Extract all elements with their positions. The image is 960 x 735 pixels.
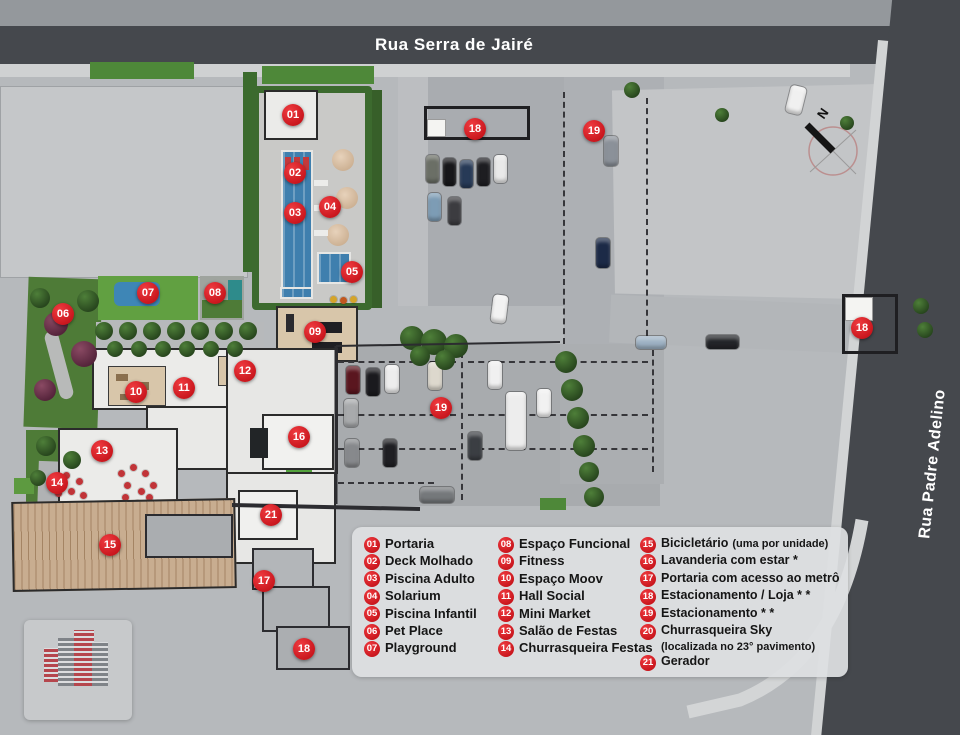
parasol <box>327 224 349 246</box>
road-top: Rua Serra de Jairé <box>0 26 960 64</box>
car <box>488 361 502 389</box>
legend-item: 18 Estacionamento / Loja * * <box>640 588 840 605</box>
lawn-strip <box>90 62 194 79</box>
deck-chair <box>340 297 347 304</box>
plan-marker: 05 <box>341 261 363 283</box>
legend-column-1: 01 Portaria 02 Deck Molhado 03 Piscina A… <box>364 536 477 658</box>
party-chair <box>142 470 149 477</box>
legend-item-number: 16 <box>640 554 656 570</box>
sidewalk-bush <box>624 82 640 98</box>
hedge-tree <box>555 351 577 373</box>
legend-item-number: 01 <box>364 537 380 553</box>
parking-divider <box>338 482 434 484</box>
legend-item-label: Piscina Infantil <box>385 606 477 621</box>
car <box>420 487 454 503</box>
walk-tree <box>167 322 185 340</box>
legend-item: 21 Gerador <box>640 654 840 671</box>
plan-marker: 19 <box>430 397 452 419</box>
legend-column-2: 08 Espaço Funcional 09 Fitness 10 Espaço… <box>498 536 653 658</box>
car <box>448 197 461 225</box>
legend-entry: 16 Lavanderia com estar * <box>640 553 840 570</box>
legend-column-3: 15 Bicicletário (uma por unidade) 16 Lav… <box>640 536 840 672</box>
legend-item-number: 13 <box>498 624 514 640</box>
legend-item-number: 18 <box>640 589 656 605</box>
legend-item-label: Bicicletário <box>661 536 728 550</box>
car <box>460 160 473 188</box>
party-chair <box>130 464 137 471</box>
car <box>494 155 507 183</box>
plan-marker: 14 <box>46 472 68 494</box>
legend-item-suffix: (uma por unidade) <box>732 538 828 550</box>
car <box>490 294 508 324</box>
legend-item: 04 Solarium <box>364 588 477 605</box>
car <box>706 335 739 349</box>
car <box>383 439 397 467</box>
plan-marker: 04 <box>319 196 341 218</box>
garden-tree <box>63 451 81 469</box>
hedge-tree <box>573 435 595 457</box>
site-plan: Rua Serra de Jairé Rua Padre Adelino N <box>0 0 960 735</box>
legend-item-label: Deck Molhado <box>385 553 473 568</box>
legend-item: 14 Churrasqueira Festas <box>498 640 653 657</box>
delivery-van <box>506 392 526 450</box>
legend-entry: 21 Gerador <box>640 654 840 671</box>
parking-lot-north <box>416 60 564 306</box>
legend-item-label: Estacionamento * * <box>661 606 774 620</box>
hedge-tree <box>579 462 599 482</box>
legend-item-label: Portaria <box>385 536 434 551</box>
legend-item-number: 11 <box>498 589 514 605</box>
walk-tree <box>215 322 233 340</box>
legend-item-label: Pet Place <box>385 623 443 638</box>
legend-item-number: 15 <box>640 537 656 553</box>
garden-tree <box>30 288 50 308</box>
parasol <box>332 149 354 171</box>
plan-marker: 17 <box>253 570 275 592</box>
plan-marker: 16 <box>288 426 310 448</box>
bbq-chair <box>80 492 87 499</box>
hedge-tree <box>567 407 589 429</box>
legend-item: 16 Lavanderia com estar * <box>640 553 840 570</box>
sun-chair <box>314 180 328 186</box>
plan-marker: 19 <box>583 120 605 142</box>
bike-hall-block <box>145 514 233 558</box>
legend-item-label: Fitness <box>519 553 565 568</box>
legend-item-label: Gerador <box>661 654 710 668</box>
legend-entry: 19 Estacionamento * * <box>640 606 840 623</box>
legend-item: 09 Fitness <box>498 553 653 570</box>
hedge-tree <box>584 487 604 507</box>
plan-marker: 09 <box>304 321 326 343</box>
walk-tree <box>143 322 161 340</box>
legend-item-number: 09 <box>498 554 514 570</box>
sidewalk-bush <box>715 108 729 122</box>
walk-tree <box>179 341 195 357</box>
legend-item-label: Portaria com acesso ao metrô <box>661 571 840 585</box>
plan-marker: 18 <box>851 317 873 339</box>
party-chair <box>150 482 157 489</box>
legend-item-number: 06 <box>364 624 380 640</box>
legend-item: 01 Portaria <box>364 536 477 553</box>
lap-pool <box>280 287 313 299</box>
walk-tree <box>239 322 257 340</box>
legend-item-number: 02 <box>364 554 380 570</box>
party-chair <box>118 470 125 477</box>
car <box>385 365 399 393</box>
party-chair <box>138 488 145 495</box>
plan-marker: 18 <box>464 118 486 140</box>
legend-item-label: Salão de Festas <box>519 623 617 638</box>
compass-rose <box>798 110 864 182</box>
car <box>596 238 610 268</box>
garden-tree <box>77 290 99 312</box>
legend-entry: 17 Portaria com acesso ao metrô <box>640 571 840 588</box>
legend-item: 02 Deck Molhado <box>364 553 477 570</box>
legend-item-number: 14 <box>498 641 514 657</box>
logo-building-icon <box>74 630 94 686</box>
car <box>477 158 490 186</box>
sun-chair <box>314 230 328 236</box>
legend-item-number: 12 <box>498 606 514 622</box>
walk-tree <box>155 341 171 357</box>
legend-item-label: Lavanderia com estar * <box>661 553 798 567</box>
legend-item: 17 Portaria com acesso ao metrô <box>640 571 840 588</box>
legend-item-note: (localizada no 23° pavimento) <box>661 640 840 654</box>
plan-marker: 10 <box>125 381 147 403</box>
legend-item-label: Churrasqueira Festas <box>519 640 653 655</box>
bbq-chair <box>76 478 83 485</box>
top-sidewalk-strip <box>0 0 960 28</box>
legend-item: 06 Pet Place <box>364 623 477 640</box>
car <box>636 336 666 349</box>
legend-item-number: 08 <box>498 537 514 553</box>
walk-tree <box>95 322 113 340</box>
legend-item: 20 Churrasqueira Sky <box>640 623 840 640</box>
legend-entry: 15 Bicicletário (uma por unidade) <box>640 536 840 553</box>
hedge-tree <box>410 346 430 366</box>
parking-divider <box>652 350 654 472</box>
walk-tree <box>131 341 147 357</box>
bbq-chair <box>68 488 75 495</box>
plan-marker: 18 <box>293 638 315 660</box>
legend-item: 13 Salão de Festas <box>498 623 653 640</box>
plan-marker: 02 <box>284 162 306 184</box>
car <box>443 158 456 186</box>
legend-item-number: 05 <box>364 606 380 622</box>
logo-building-icon <box>92 642 108 686</box>
plan-marker: 12 <box>234 360 256 382</box>
funcional-pool <box>228 280 242 300</box>
legend-item-number: 21 <box>640 655 656 671</box>
legend-item-number: 20 <box>640 624 656 640</box>
plan-marker: 15 <box>99 534 121 556</box>
street-name-top: Rua Serra de Jairé <box>375 35 533 55</box>
plan-marker: 03 <box>284 202 306 224</box>
plan-marker: 08 <box>204 282 226 304</box>
car <box>344 399 358 427</box>
car <box>537 389 551 417</box>
legend-item-number: 03 <box>364 571 380 587</box>
legend-item-number: 07 <box>364 641 380 657</box>
car <box>604 136 618 166</box>
parking-divider <box>468 414 648 416</box>
sidewalk-bush <box>913 298 929 314</box>
parking-divider <box>563 92 565 344</box>
legend-item-label: Estacionamento / Loja * * <box>661 588 810 602</box>
driveway-north <box>398 62 428 306</box>
legend-item: 11 Hall Social <box>498 588 653 605</box>
legend-entry: 20 Churrasqueira Sky (localizada no 23° … <box>640 623 840 654</box>
hedge-tree <box>561 379 583 401</box>
legend-item: 07 Playground <box>364 640 477 657</box>
legend-item: 10 Espaço Moov <box>498 571 653 588</box>
walk-tree <box>119 322 137 340</box>
car <box>426 155 439 183</box>
legend-item-label: Solarium <box>385 588 441 603</box>
plan-marker: 13 <box>91 440 113 462</box>
sidewalk-bush <box>840 116 854 130</box>
walk-tree <box>107 341 123 357</box>
neighbor-lot-northwest <box>0 86 248 278</box>
parking-divider <box>461 352 463 500</box>
garden-tree <box>30 470 46 486</box>
legend-item-label: Churrasqueira Sky <box>661 623 772 637</box>
car <box>345 439 359 467</box>
moov-furniture <box>116 374 128 381</box>
garden-tree <box>36 436 56 456</box>
hedge-tree <box>435 350 455 370</box>
car <box>428 193 441 221</box>
plan-marker: 21 <box>260 504 282 526</box>
pet-place-tree <box>71 341 97 367</box>
shop-room-north-cell <box>427 119 446 137</box>
parking-divider <box>468 448 648 450</box>
laundry-machines <box>250 428 268 458</box>
plan-marker: 01 <box>282 104 304 126</box>
walk-tree <box>203 341 219 357</box>
legend-item-number: 17 <box>640 571 656 587</box>
legend: 01 Portaria 02 Deck Molhado 03 Piscina A… <box>352 527 848 677</box>
plan-marker: 07 <box>137 282 159 304</box>
plan-marker: 06 <box>52 303 74 325</box>
sidewalk-bush <box>917 322 933 338</box>
legend-item-label: Espaço Funcional <box>519 536 630 551</box>
plan-marker: 11 <box>173 377 195 399</box>
deck-chair <box>350 296 357 303</box>
legend-item-label: Mini Market <box>519 606 591 621</box>
legend-item-number: 04 <box>364 589 380 605</box>
legend-item-label: Espaço Moov <box>519 571 603 586</box>
pet-place-tree <box>34 379 56 401</box>
legend-item-label: Hall Social <box>519 588 585 603</box>
legend-item-label: Playground <box>385 640 457 655</box>
legend-item-number: 19 <box>640 606 656 622</box>
walk-tree <box>227 341 243 357</box>
deck-chair <box>330 296 337 303</box>
funcional-lawn <box>202 300 242 318</box>
car <box>366 368 380 396</box>
lawn-strip <box>262 66 374 84</box>
lawn-strip <box>540 498 566 510</box>
legend-item: 12 Mini Market <box>498 606 653 623</box>
legend-entry: 18 Estacionamento / Loja * * <box>640 588 840 605</box>
legend-item: 15 Bicicletário (uma por unidade) <box>640 536 840 553</box>
legend-item: 05 Piscina Infantil <box>364 606 477 623</box>
parking-divider <box>646 98 648 346</box>
legend-item-label: Piscina Adulto <box>385 571 475 586</box>
walk-tree <box>191 322 209 340</box>
legend-item: 08 Espaço Funcional <box>498 536 653 553</box>
legend-item: 19 Estacionamento * * <box>640 606 840 623</box>
gym-equipment <box>286 314 294 332</box>
car <box>468 432 482 460</box>
legend-item-number: 10 <box>498 571 514 587</box>
legend-item: 03 Piscina Adulto <box>364 571 477 588</box>
car <box>346 366 360 394</box>
compass: N <box>798 110 864 182</box>
developer-logo <box>24 620 132 720</box>
party-chair <box>124 482 131 489</box>
